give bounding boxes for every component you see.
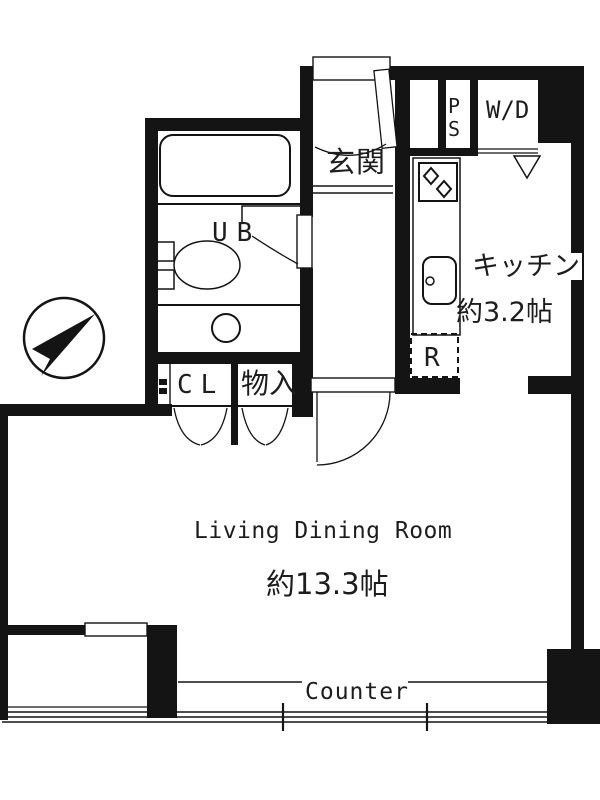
entrance-label: 玄関 <box>326 148 386 177</box>
wall-alcove-right <box>147 625 177 718</box>
storage-label: 物入 <box>241 370 297 398</box>
wall-under-niche <box>408 148 478 156</box>
unit-bath-label: UB <box>212 220 261 246</box>
living-room-label: Living Dining Room <box>194 520 452 543</box>
refrigerator-label: R <box>424 345 440 371</box>
pipe-space-line1: P <box>448 95 460 118</box>
kitchen-label: キッチン <box>470 253 582 280</box>
ub-door-opening <box>297 215 312 268</box>
compass-arrow <box>32 314 95 376</box>
entrance-door-leaf <box>374 69 397 148</box>
wall-closet-divider <box>231 364 238 445</box>
door-swings <box>315 69 397 465</box>
stove-burner-2 <box>437 181 451 197</box>
kitchen-size-label: 約3.2帖 <box>456 299 553 326</box>
wall-ub-left <box>145 118 158 416</box>
sink-faucet <box>426 277 434 285</box>
wall-ub-top <box>145 118 313 131</box>
pipe-space-label: PS <box>448 95 460 141</box>
floor-plan: 玄関 UB CL 物入 PS W/D キッチン 約3.2帖 R Living D… <box>0 0 600 800</box>
kitchen-sink <box>423 257 456 304</box>
closet-label: CL <box>177 372 224 398</box>
wash-basin <box>212 314 240 342</box>
storage-door-arc <box>242 408 265 445</box>
wall-ld-top-left <box>0 404 172 416</box>
ld-door-opening <box>311 378 395 392</box>
wall-hall-right <box>395 66 410 394</box>
storage-door-arc <box>266 408 288 445</box>
wall-corner-block <box>547 649 600 724</box>
bathtub <box>160 135 290 196</box>
stove-burner-1 <box>424 168 438 184</box>
ld-door-arc <box>317 392 390 465</box>
wall-right <box>571 143 584 649</box>
meter-box-mark <box>159 379 167 385</box>
toilet-bowl <box>174 241 240 289</box>
living-room-size-label: 約13.3帖 <box>266 570 389 599</box>
wall-above-closets <box>145 352 300 364</box>
closet-door-arc <box>201 408 227 445</box>
washer-dryer-label: W/D <box>486 98 529 122</box>
wall-ld-left <box>0 404 8 720</box>
wall-wd-top <box>478 66 538 78</box>
wd-triangle <box>514 156 540 178</box>
pipe-space-line2: S <box>448 118 460 141</box>
alcove-window-opening <box>85 623 147 636</box>
stove-box <box>419 163 457 201</box>
wall-kitchen-bottom <box>528 376 584 394</box>
wall-ps-top <box>446 66 470 78</box>
wall-top-right-block <box>538 66 584 143</box>
windows <box>2 682 547 731</box>
wall-niche-right <box>438 66 446 156</box>
wall-ps-right <box>470 66 478 156</box>
compass-icon <box>24 298 104 378</box>
wall-hall-left-upper <box>300 66 313 217</box>
counter-label: Counter <box>305 681 409 704</box>
kitchen-counter <box>413 158 460 335</box>
closet-door-arc <box>174 408 200 445</box>
meter-box-mark <box>159 388 167 394</box>
door-openings <box>85 57 395 636</box>
wall-under-fridge <box>395 378 460 394</box>
